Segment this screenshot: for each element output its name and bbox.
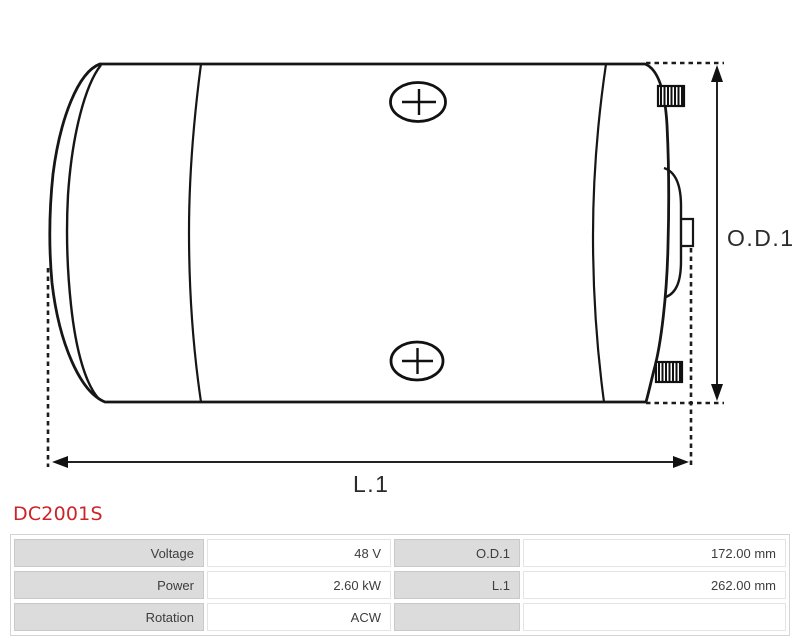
- motor-diagram: O.D.1 L.1: [0, 0, 800, 500]
- l1-dimension-line: [52, 456, 689, 468]
- table-row: Voltage 48 V O.D.1 172.00 mm: [14, 539, 786, 567]
- extension-lines: [48, 63, 724, 467]
- spec-value-rotation: ACW: [207, 603, 391, 631]
- spec-label-l1: L.1: [394, 571, 520, 599]
- product-code-title: DC2001S: [13, 503, 103, 525]
- terminal-stud-bottom: [656, 362, 682, 382]
- l1-dimension-label: L.1: [353, 471, 389, 497]
- motor-diagram-svg: O.D.1 L.1: [0, 0, 800, 500]
- od1-dimension-line: [711, 65, 723, 401]
- table-row: Power 2.60 kW L.1 262.00 mm: [14, 571, 786, 599]
- spec-value-power: 2.60 kW: [207, 571, 391, 599]
- spec-value-od1: 172.00 mm: [523, 539, 786, 567]
- motor-body-outline: [50, 64, 669, 402]
- spec-value-l1: 262.00 mm: [523, 571, 786, 599]
- screw-head-bottom-icon: [391, 342, 443, 380]
- spec-label-power: Power: [14, 571, 204, 599]
- spec-value-empty: [523, 603, 786, 631]
- product-spec-page: O.D.1 L.1 DC2001S Voltage 48 V O.D.1 172…: [0, 0, 800, 640]
- od1-dimension-label: O.D.1: [727, 225, 795, 251]
- spec-table: Voltage 48 V O.D.1 172.00 mm Power 2.60 …: [10, 534, 790, 636]
- spec-label-voltage: Voltage: [14, 539, 204, 567]
- body-section-line-left: [189, 64, 201, 402]
- endcap-inner-curve: [67, 65, 101, 399]
- screw-head-top-icon: [391, 83, 446, 122]
- spec-label-empty: [394, 603, 520, 631]
- spec-value-voltage: 48 V: [207, 539, 391, 567]
- terminal-stud-top: [658, 86, 684, 106]
- body-section-line-right: [593, 64, 606, 402]
- spec-label-od1: O.D.1: [394, 539, 520, 567]
- spec-label-rotation: Rotation: [14, 603, 204, 631]
- table-row: Rotation ACW: [14, 603, 786, 631]
